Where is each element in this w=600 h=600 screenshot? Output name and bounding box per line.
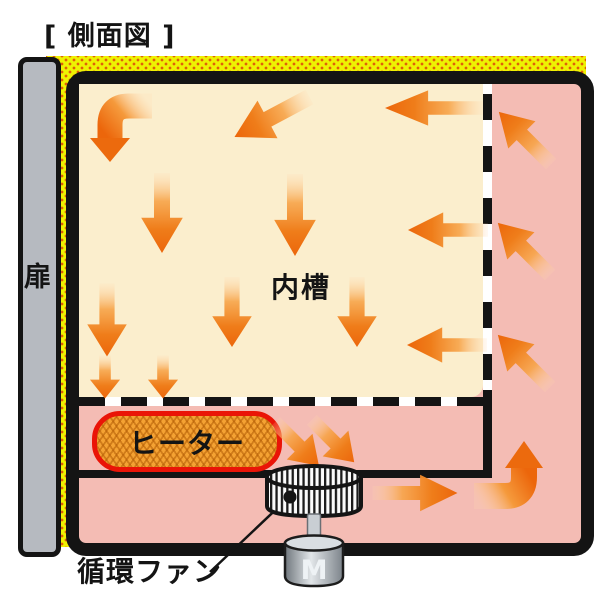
heater: ヒーター — [92, 411, 282, 472]
circulation-fan-label: 循環ファン — [77, 550, 222, 590]
door-panel — [18, 57, 61, 557]
chamber-perforated-wall-bottom — [79, 397, 491, 406]
door-label: 扉 — [24, 255, 51, 294]
inner-chamber-label: 内槽 — [271, 266, 331, 306]
inner-chamber — [79, 84, 483, 397]
chamber-perforated-wall-right — [483, 84, 492, 397]
page-title: [ 側面図 ] — [44, 14, 175, 53]
heater-label: ヒーター — [129, 422, 245, 462]
diagram-stage: [ 側面図 ] 扉 ヒーター 内槽 — [0, 0, 600, 600]
duct-wall-riser — [483, 390, 492, 478]
motor-label: M — [301, 555, 328, 586]
